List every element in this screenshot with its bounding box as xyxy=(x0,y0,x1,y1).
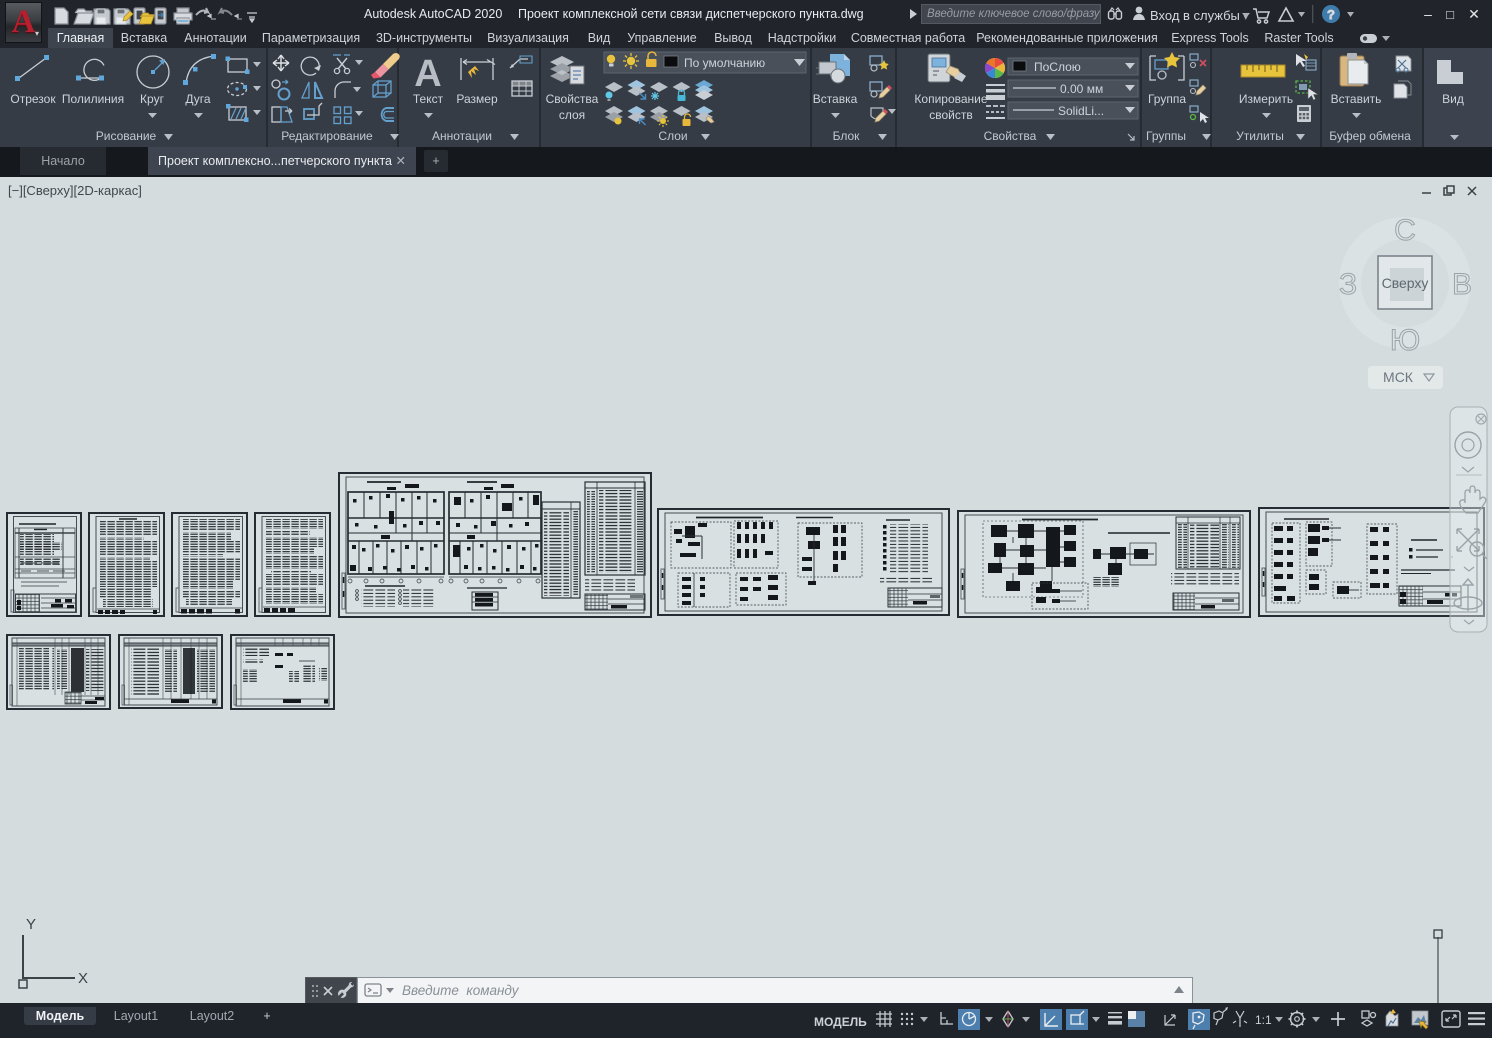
svg-text:Y: Y xyxy=(26,916,36,933)
svg-text:Отрезок: Отрезок xyxy=(10,92,56,106)
svg-text:X: X xyxy=(78,970,88,987)
svg-text:0.00 мм: 0.00 мм xyxy=(1060,82,1103,96)
svg-text:Свойства: Свойства xyxy=(546,92,599,106)
svg-text:Сверху: Сверху xyxy=(1382,275,1429,291)
svg-text:Группа: Группа xyxy=(1148,92,1186,106)
svg-text:Вставить: Вставить xyxy=(1331,92,1382,106)
svg-text:З: З xyxy=(1339,268,1357,301)
svg-text:свойств: свойств xyxy=(929,108,973,122)
svg-text:Рисование: Рисование xyxy=(96,129,157,143)
svg-text:Размер: Размер xyxy=(456,92,498,106)
svg-text:Вид: Вид xyxy=(1442,92,1464,106)
svg-text:Буфер обмена: Буфер обмена xyxy=(1329,129,1411,143)
svg-text:1:1: 1:1 xyxy=(1255,1013,1272,1027)
svg-text:Ю: Ю xyxy=(1390,324,1420,357)
svg-text:Свойства: Свойства xyxy=(984,129,1037,143)
svg-text:Текст: Текст xyxy=(413,92,444,106)
svg-text:Слои: Слои xyxy=(658,129,687,143)
svg-text:?: ? xyxy=(1327,7,1335,22)
svg-text:Дуга: Дуга xyxy=(185,92,211,106)
svg-text:Полилиния: Полилиния xyxy=(62,92,124,106)
svg-text:МСК: МСК xyxy=(1383,369,1414,385)
svg-text:слоя: слоя xyxy=(559,108,585,122)
svg-text:Круг: Круг xyxy=(140,92,165,106)
svg-text:Утилиты: Утилиты xyxy=(1236,129,1284,143)
svg-text:Аннотации: Аннотации xyxy=(432,129,492,143)
svg-text:Вставка: Вставка xyxy=(813,92,858,106)
svg-text:Измерить: Измерить xyxy=(1239,92,1293,106)
svg-text:Блок: Блок xyxy=(833,129,861,143)
svg-text:A: A xyxy=(414,53,441,95)
svg-text:По умолчанию: По умолчанию xyxy=(684,56,765,70)
svg-text:Копирование: Копирование xyxy=(914,92,987,106)
svg-text:SolidLi...: SolidLi... xyxy=(1058,104,1104,118)
svg-text:Редактирование: Редактирование xyxy=(281,129,373,143)
svg-text:Группы: Группы xyxy=(1146,129,1186,143)
svg-text:ПоСлою: ПоСлою xyxy=(1034,60,1081,74)
svg-text:В: В xyxy=(1452,268,1472,301)
svg-text:МОДЕЛЬ: МОДЕЛЬ xyxy=(814,1015,867,1029)
svg-text:С: С xyxy=(1394,214,1416,247)
